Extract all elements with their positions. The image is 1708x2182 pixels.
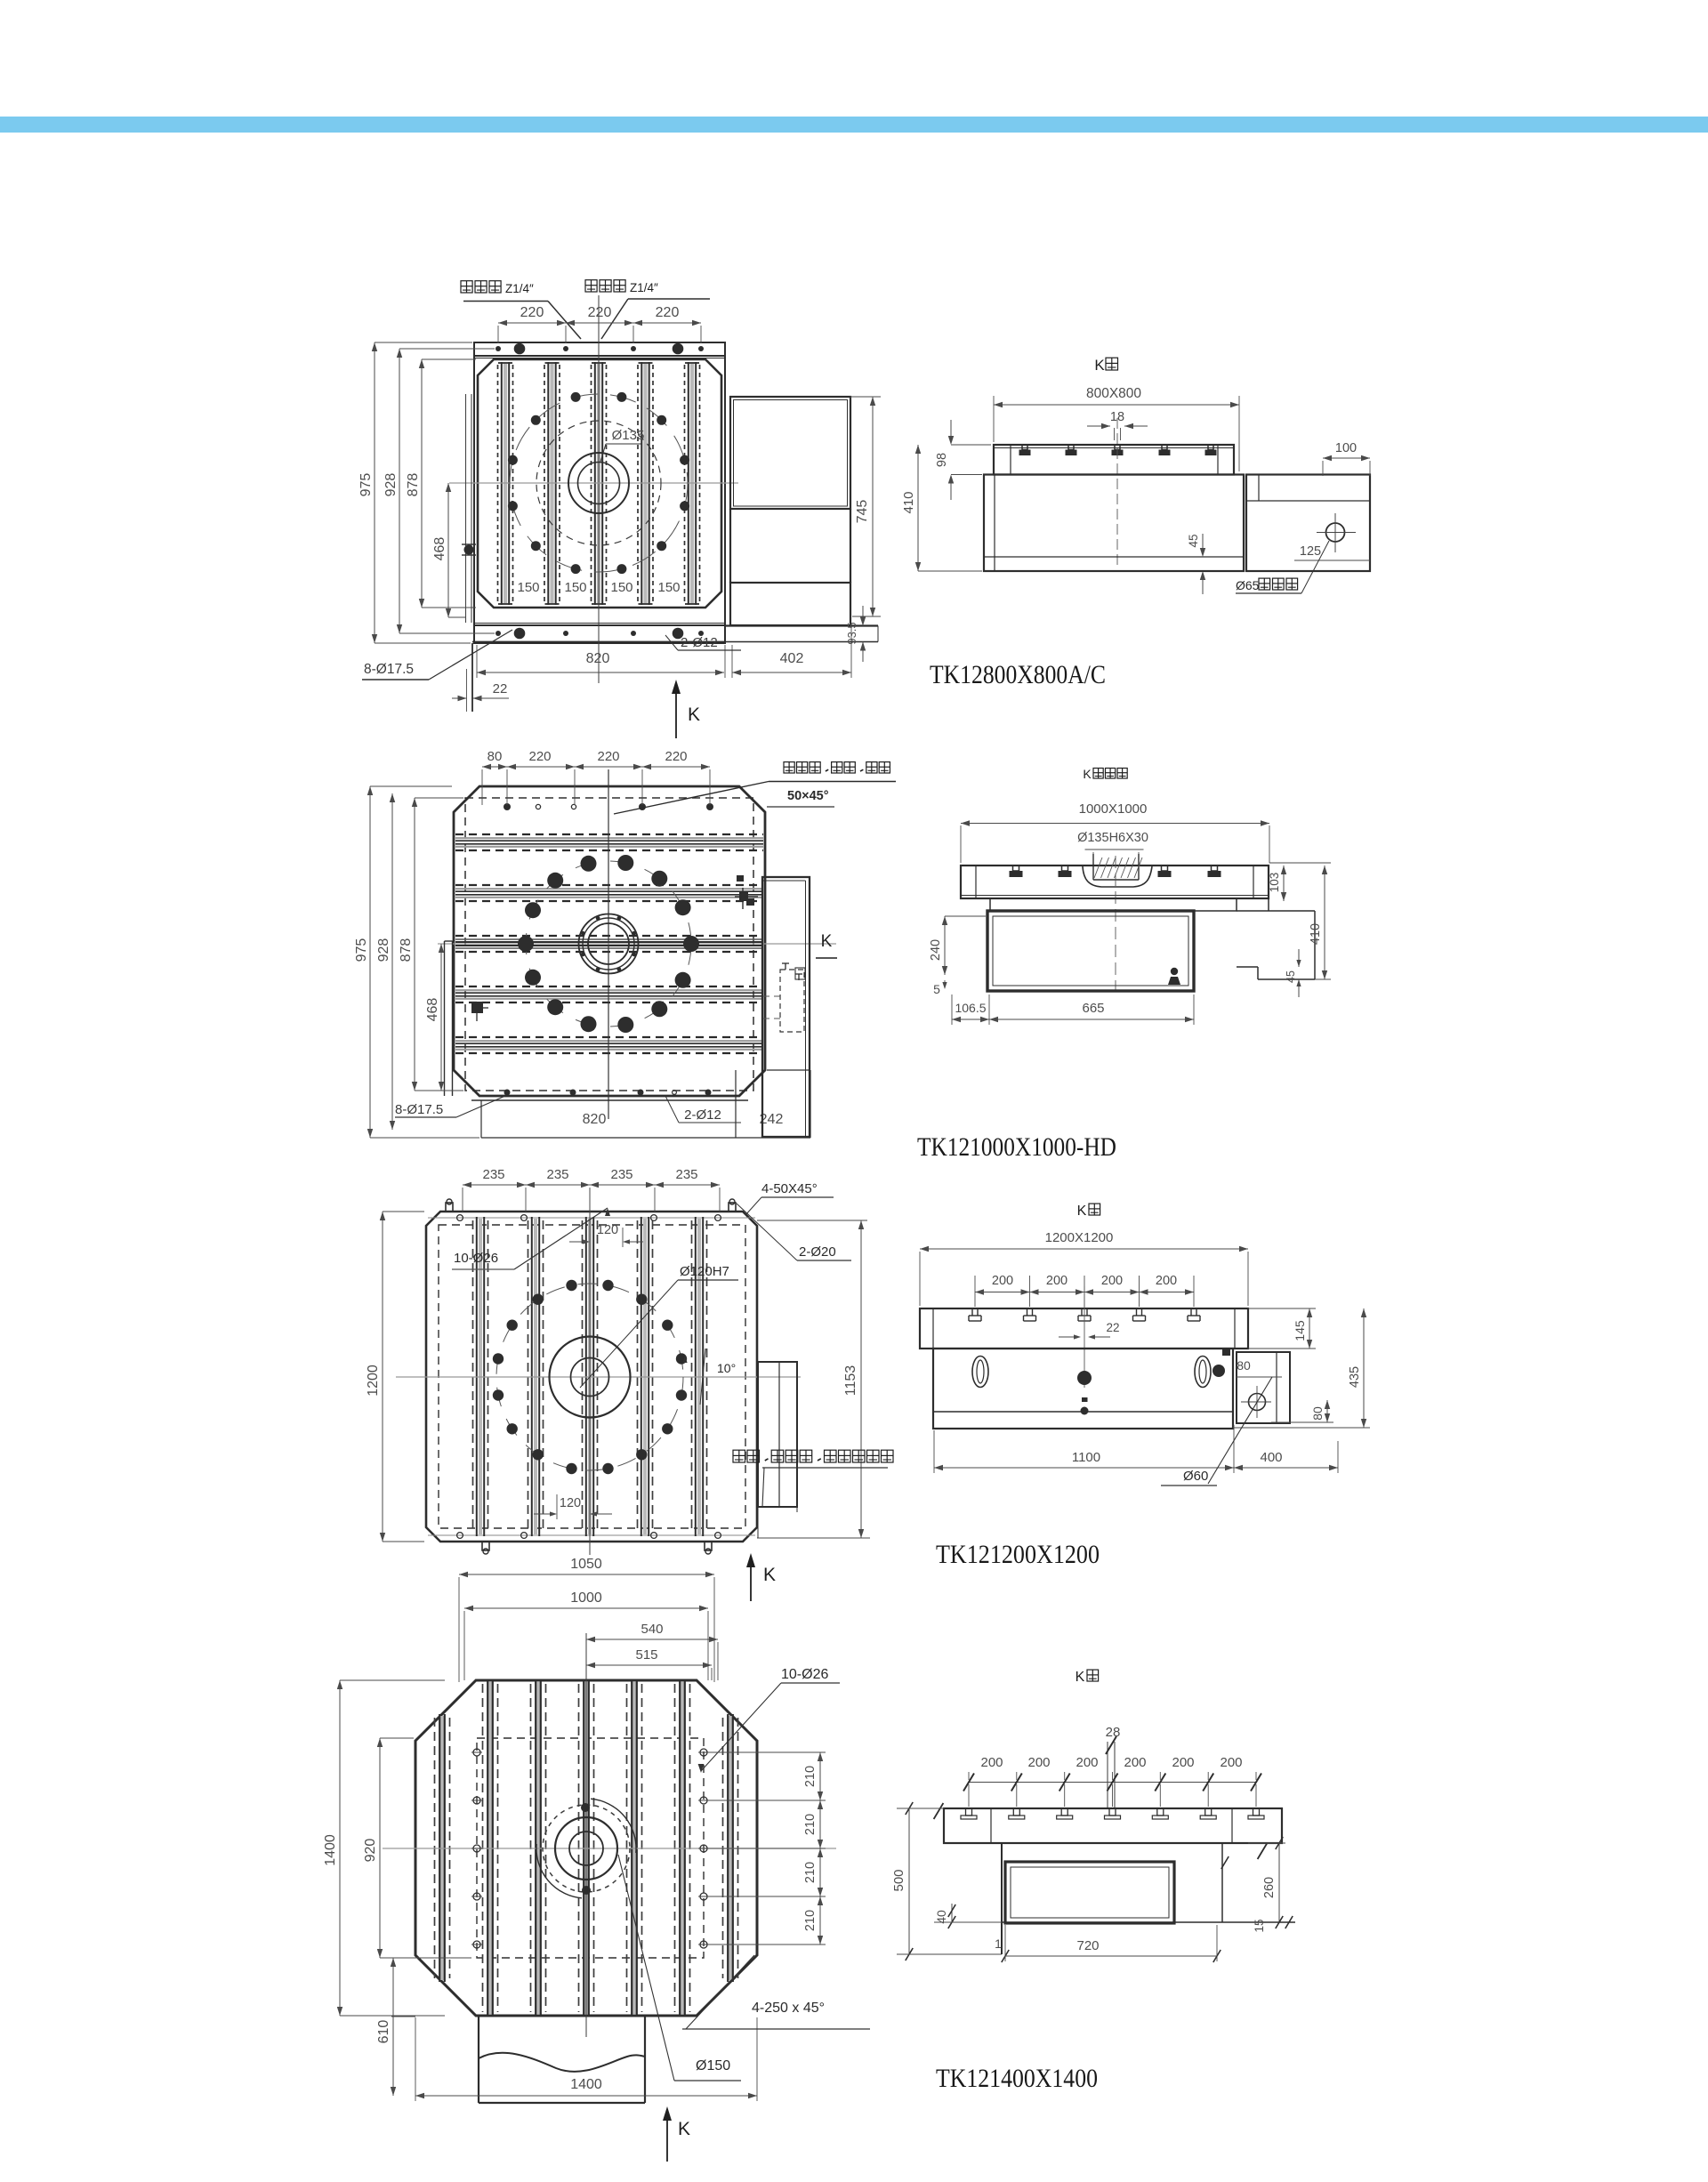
svg-text:665: 665: [1082, 1001, 1104, 1016]
svg-text:410: 410: [901, 491, 916, 513]
svg-text:8-Ø17.5: 8-Ø17.5: [364, 662, 414, 677]
svg-text:120: 120: [560, 1496, 581, 1510]
svg-text:K: K: [1076, 1670, 1085, 1685]
svg-text:1000: 1000: [570, 1590, 602, 1606]
svg-text:240: 240: [929, 939, 943, 961]
svg-text:145: 145: [1293, 1320, 1307, 1341]
svg-text:1400: 1400: [323, 1834, 338, 1866]
svg-text:820: 820: [586, 651, 610, 666]
svg-text:80: 80: [1237, 1358, 1251, 1373]
svg-text:100: 100: [1335, 441, 1357, 455]
svg-text:10-Ø26: 10-Ø26: [454, 1251, 498, 1266]
svg-text:150: 150: [610, 580, 632, 595]
svg-text:8-Ø17.5: 8-Ø17.5: [395, 1102, 443, 1117]
svg-text:150: 150: [517, 580, 539, 595]
svg-text:402: 402: [780, 651, 804, 666]
svg-text:K: K: [1094, 357, 1105, 374]
svg-text:200: 200: [992, 1274, 1013, 1288]
svg-text:800X800: 800X800: [1086, 386, 1141, 401]
svg-text:235: 235: [675, 1167, 697, 1182]
svg-text:K: K: [678, 2119, 690, 2139]
svg-text:22: 22: [1106, 1321, 1119, 1334]
svg-text:435: 435: [1348, 1366, 1362, 1388]
svg-text:150: 150: [564, 580, 586, 595]
svg-text:28: 28: [1106, 1725, 1121, 1740]
svg-text:200: 200: [1124, 1755, 1146, 1770]
svg-text:200: 200: [1076, 1755, 1098, 1770]
svg-text:1: 1: [995, 1936, 1002, 1951]
svg-text:260: 260: [1262, 1877, 1277, 1898]
svg-text:400: 400: [1260, 1450, 1282, 1465]
svg-text:45: 45: [1187, 534, 1200, 547]
svg-text:210: 210: [803, 1814, 818, 1835]
svg-text:220: 220: [597, 749, 619, 764]
svg-text:610: 610: [376, 2020, 391, 2044]
svg-text:200: 200: [1101, 1274, 1123, 1288]
svg-text:220: 220: [520, 305, 544, 320]
svg-text:200: 200: [1172, 1755, 1194, 1770]
svg-text:98: 98: [935, 453, 949, 467]
svg-text:468: 468: [432, 537, 447, 561]
svg-text:210: 210: [803, 1766, 818, 1787]
svg-text:1200: 1200: [366, 1365, 381, 1397]
svg-text:220: 220: [588, 305, 612, 320]
svg-text:150: 150: [657, 580, 680, 595]
svg-text:106.5: 106.5: [955, 1001, 986, 1015]
svg-text:200: 200: [1156, 1274, 1177, 1288]
svg-text:1050: 1050: [570, 1557, 602, 1572]
svg-text:K: K: [821, 932, 833, 951]
svg-text:Ø135: Ø135: [612, 428, 645, 443]
svg-text:TK121000X1000-HD: TK121000X1000-HD: [917, 1132, 1116, 1162]
svg-text:235: 235: [610, 1167, 632, 1182]
svg-text:720: 720: [1076, 1938, 1099, 1953]
svg-text:Ø60: Ø60: [1183, 1469, 1208, 1484]
svg-text:1000X1000: 1000X1000: [1079, 801, 1148, 817]
svg-text:45: 45: [1285, 970, 1297, 983]
svg-text:15: 15: [1253, 1919, 1266, 1932]
svg-text:Z1/4″: Z1/4″: [505, 282, 534, 295]
svg-text:120: 120: [597, 1223, 618, 1237]
svg-text:2-Ø12: 2-Ø12: [681, 635, 718, 650]
svg-text:Ø150: Ø150: [696, 2058, 730, 2073]
svg-text:10°: 10°: [717, 1361, 736, 1375]
svg-text:5: 5: [933, 982, 940, 996]
svg-text:Ø135H6X30: Ø135H6X30: [1077, 831, 1148, 845]
svg-text:80: 80: [487, 749, 503, 764]
svg-text:Z1/4″: Z1/4″: [630, 281, 658, 294]
svg-text:10-Ø26: 10-Ø26: [781, 1667, 828, 1682]
svg-text:80: 80: [1310, 1406, 1325, 1421]
svg-text:K: K: [1083, 767, 1092, 781]
svg-text:745: 745: [855, 500, 870, 524]
svg-text:220: 220: [665, 749, 687, 764]
svg-text:200: 200: [1027, 1755, 1050, 1770]
svg-text:93.5: 93.5: [845, 622, 858, 644]
svg-text:1400: 1400: [570, 2077, 602, 2092]
svg-text:540: 540: [640, 1622, 663, 1637]
svg-text:2-Ø20: 2-Ø20: [799, 1244, 836, 1260]
svg-text:220: 220: [528, 749, 551, 764]
svg-text:1153: 1153: [843, 1365, 858, 1397]
svg-text:928: 928: [376, 938, 391, 962]
svg-text:200: 200: [1220, 1755, 1242, 1770]
svg-text:TK12800X800A/C: TK12800X800A/C: [930, 660, 1106, 689]
svg-text:210: 210: [803, 1910, 818, 1931]
svg-text:4-250 x 45°: 4-250 x 45°: [752, 2001, 825, 2016]
svg-text:200: 200: [980, 1755, 1003, 1770]
svg-text:975: 975: [354, 938, 369, 962]
svg-text:K: K: [763, 1565, 776, 1585]
svg-text:103: 103: [1268, 873, 1281, 893]
svg-text:920: 920: [363, 1839, 378, 1863]
svg-text:Ø120H7: Ø120H7: [680, 1264, 729, 1279]
svg-text:4-50X45°: 4-50X45°: [761, 1181, 818, 1196]
svg-text:210: 210: [803, 1862, 818, 1883]
svg-text:125: 125: [1300, 544, 1321, 559]
svg-text:200: 200: [1046, 1274, 1067, 1288]
svg-text:TK121400X1400: TK121400X1400: [936, 2064, 1098, 2093]
svg-text:Ø65: Ø65: [1236, 578, 1260, 592]
svg-text:468: 468: [425, 998, 440, 1022]
svg-text:878: 878: [399, 938, 414, 962]
svg-text:500: 500: [891, 1869, 906, 1891]
svg-text:K: K: [688, 705, 700, 725]
svg-text:2-Ø12: 2-Ø12: [684, 1107, 721, 1123]
svg-text:975: 975: [359, 473, 374, 497]
svg-text:1100: 1100: [1072, 1450, 1100, 1465]
svg-text:928: 928: [383, 473, 399, 497]
svg-text:22: 22: [493, 681, 508, 696]
svg-text:515: 515: [635, 1647, 657, 1663]
svg-text:878: 878: [406, 473, 421, 497]
svg-text:235: 235: [546, 1167, 568, 1182]
svg-text:1200X1200: 1200X1200: [1045, 1230, 1114, 1245]
svg-text:K: K: [1077, 1204, 1087, 1219]
svg-text:820: 820: [583, 1112, 607, 1127]
svg-text:50×45°: 50×45°: [787, 789, 829, 803]
svg-text:235: 235: [482, 1167, 504, 1182]
svg-text:220: 220: [656, 305, 680, 320]
svg-text:40: 40: [934, 1910, 948, 1924]
svg-text:410: 410: [1309, 923, 1323, 945]
svg-text:TK121200X1200: TK121200X1200: [936, 1540, 1100, 1569]
